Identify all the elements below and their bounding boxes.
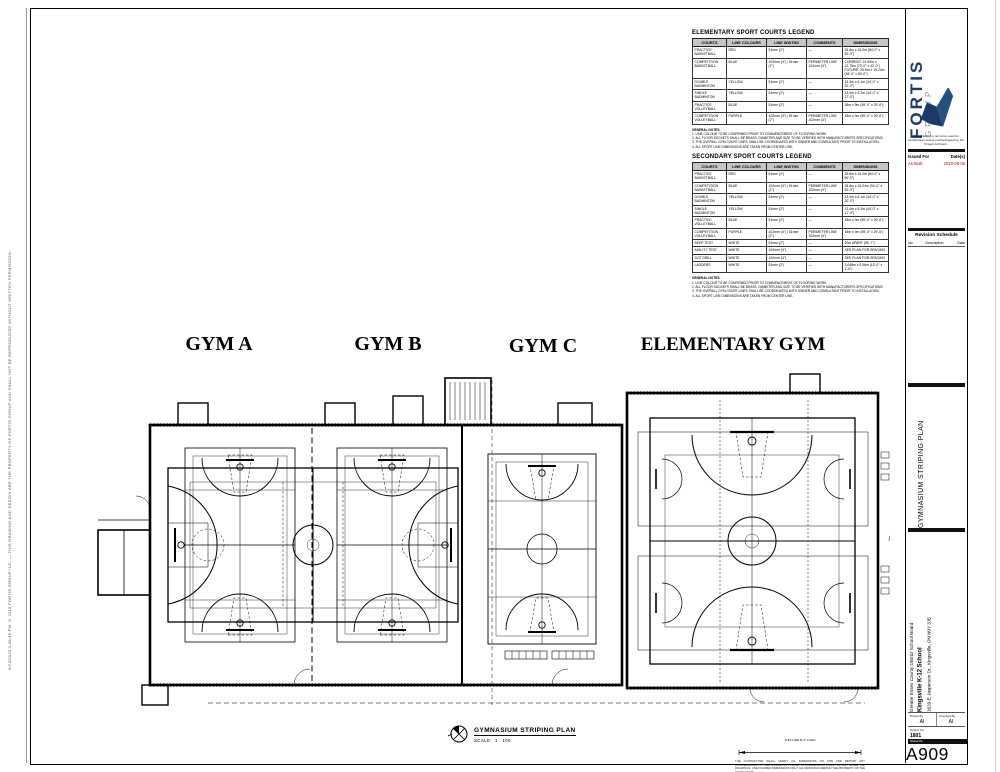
legend-row: COMPETITION VOLLEYBALLPURPLE102mm (4") /…: [693, 228, 889, 240]
drawn-by-value: AI: [910, 719, 934, 725]
titleblock-divider: [905, 8, 906, 763]
general-note: 4. ALL SPORT LINE DIMENSIONS ARE TAKEN F…: [692, 294, 888, 298]
checked-by-value: AI: [939, 719, 963, 725]
project-address: 1620-E Jasperson Dr., Kingsville, ON N9Y…: [926, 584, 934, 712]
ladder-markings: [505, 651, 594, 659]
right-corridor: [881, 430, 890, 688]
legend-row: LADDERSWHITE51mm (2")—3.048m x 0.46m (10…: [693, 261, 889, 273]
issued-for-value: As-Built: [908, 161, 922, 166]
gym-c-courts: [488, 454, 596, 659]
legend-column-header: LINE WIDTHS: [767, 39, 807, 47]
gym-b-practice-court: [337, 448, 447, 642]
legend-row: BEEP TESTWHITE51mm (2")—20m APART (65'-7…: [693, 240, 889, 247]
scale-bar-label: THIS LINE IS 3" LONG: [735, 738, 865, 742]
issued-for-row: As-Built 2020-08-06: [908, 161, 965, 166]
legend-row: PRACTICE VOLLEYBALLBLUE51mm (2")—18m x 9…: [693, 217, 889, 229]
general-note: 3. THE OVERALL GYM COURT LINES SHALL BE …: [692, 289, 888, 293]
legend-column-header: COURTS: [693, 39, 727, 47]
project-no-label: Project No.: [910, 728, 963, 732]
floor-plan: [90, 370, 890, 715]
scale-check: THIS LINE IS 3" LONG THE CONTRACTOR SHAL…: [735, 738, 865, 772]
drawn-by-label: Drawn By: [910, 714, 934, 718]
gym-b-label: GYM B: [354, 333, 421, 356]
legend-row: AGILITY TESTWHITE102mm (4")—SEE PLAN FOR…: [693, 247, 889, 254]
project-name: Kingsville K-12 School: [915, 584, 925, 712]
north-arrow-icon: [448, 724, 468, 744]
legend-column-header: DIMENSIONS: [843, 39, 889, 47]
legend-row: COMPETITION BASKETBALLBLUE102mm (4") / 5…: [693, 58, 889, 78]
drawing-scale: SCALE: 1 : 100: [474, 738, 576, 743]
legend-column-header: LINE COLOURS: [727, 39, 767, 47]
legend-row: DOT DRILLWHITE102mm (4")—SEE PLAN FOR SP…: [693, 254, 889, 261]
legend-row: SINGLE BADMINTONYELLOW51mm (2")—13.4m x …: [693, 205, 889, 217]
secondary-legend-title: SECONDARY SPORT COURTS LEGEND: [692, 154, 888, 160]
elementary-general-notes: GENERAL NOTES: 1. LINE COLOUR TO BE CONF…: [692, 128, 888, 150]
fortis-logo-mark-icon: [913, 88, 959, 134]
secondary-legend-table: COURTSLINE COLOURSLINE WIDTHSCOMMENTSDIM…: [692, 162, 889, 273]
legend-row: COMPETITION BASKETBALLBLUE102mm (4") / 5…: [693, 182, 889, 194]
client-name: Greater Essex County District School Boa…: [908, 584, 915, 712]
titleblock-bar: [908, 149, 965, 152]
general-note: 4. ALL SPORT LINE DIMENSIONS ARE TAKEN F…: [692, 145, 888, 149]
legend-column-header: COMMENTS: [807, 163, 843, 171]
legend-row: COMPETITION VOLLEYBALLPURPLE102mm (4") /…: [693, 113, 889, 125]
drawn-checked-block: Drawn By AI Checked By AI Project No. 18…: [908, 712, 965, 741]
titleblock-bar: [908, 228, 965, 231]
elementary-legend-table: COURTSLINE COLOURSLINE WIDTHSCOMMENTSDIM…: [692, 38, 889, 125]
drawing-title: GYMNASIUM STRIPING PLAN: [474, 727, 576, 736]
drawing-title-group: GYMNASIUM STRIPING PLAN SCALE: 1 : 100: [474, 727, 576, 743]
scale-check-note: THE CONTRACTOR SHALL VERIFY ALL DIMENSIO…: [735, 760, 865, 772]
gym-c-label: GYM C: [509, 335, 577, 358]
legend-column-header: DIMENSIONS: [843, 163, 889, 171]
project-info: Greater Essex County District School Boa…: [908, 584, 964, 712]
left-rooms: [98, 496, 168, 705]
gym-a-practice-court: [185, 448, 295, 642]
legend-row: DOUBLE BADMINTONYELLOW51mm (2")—13.4m x …: [693, 78, 889, 90]
legend-row: PRACTICE VOLLEYBALLBLUE51mm (2")—18m x 9…: [693, 101, 889, 113]
secondary-general-notes: GENERAL NOTES: 1. LINE COLOUR TO BE CONF…: [692, 276, 888, 298]
legend-column-header: COMMENTS: [807, 39, 843, 47]
titleblock-disclaimer: This drawing is not to be used for const…: [907, 134, 965, 146]
legend-row: PRACTICE BASKETBALLRED51mm (2")—25.6m x …: [693, 47, 889, 59]
scale-bar: [735, 750, 865, 755]
legend-column-header: COURTS: [693, 163, 727, 171]
issued-for-header: Issued ForDate(s): [908, 154, 965, 159]
elementary-gym-courts: [638, 400, 868, 682]
revision-schedule-header: No. Description Date: [908, 241, 965, 247]
gym-a-label: GYM A: [185, 333, 252, 356]
legend-row: DOUBLE BADMINTONYELLOW51mm (2")—13.4m x …: [693, 194, 889, 206]
sheet-number: A909: [906, 744, 949, 765]
secondary-legend: SECONDARY SPORT COURTS LEGEND COURTSLINE…: [692, 154, 888, 298]
issued-date-value: 2020-08-06: [944, 161, 965, 166]
legend-column-header: LINE COLOURS: [727, 163, 767, 171]
elementary-legend: ELEMENTARY SPORT COURTS LEGEND COURTSLIN…: [692, 30, 888, 149]
elementary-legend-title: ELEMENTARY SPORT COURTS LEGEND: [692, 30, 888, 36]
sheet-edge-line: [26, 8, 27, 763]
plot-stamp: 6/23/2020 2:58:45 PM © 2019 FORTIS GROUP…: [7, 30, 19, 670]
titleblock-bar: [908, 383, 965, 387]
titleblock-bar: [908, 528, 965, 532]
legend-row: SINGLE BADMINTONYELLOW51mm (2")—13.4m x …: [693, 90, 889, 102]
legend-column-header: LINE WIDTHS: [767, 163, 807, 171]
legend-row: PRACTICE BASKETBALLRED51mm (2")—25.6m x …: [693, 171, 889, 183]
drawing-sheet: 6/23/2020 2:58:45 PM © 2019 FORTIS GROUP…: [0, 0, 1000, 772]
revision-schedule-title: Revision Schedule: [908, 233, 965, 238]
elementary-gym-label: ELEMENTARY GYM: [641, 334, 826, 356]
sheet-title-vertical: GYMNASIUM STRIPING PLAN: [918, 390, 952, 528]
page-edge: [995, 0, 996, 772]
checked-by-label: Checked By: [939, 714, 963, 718]
